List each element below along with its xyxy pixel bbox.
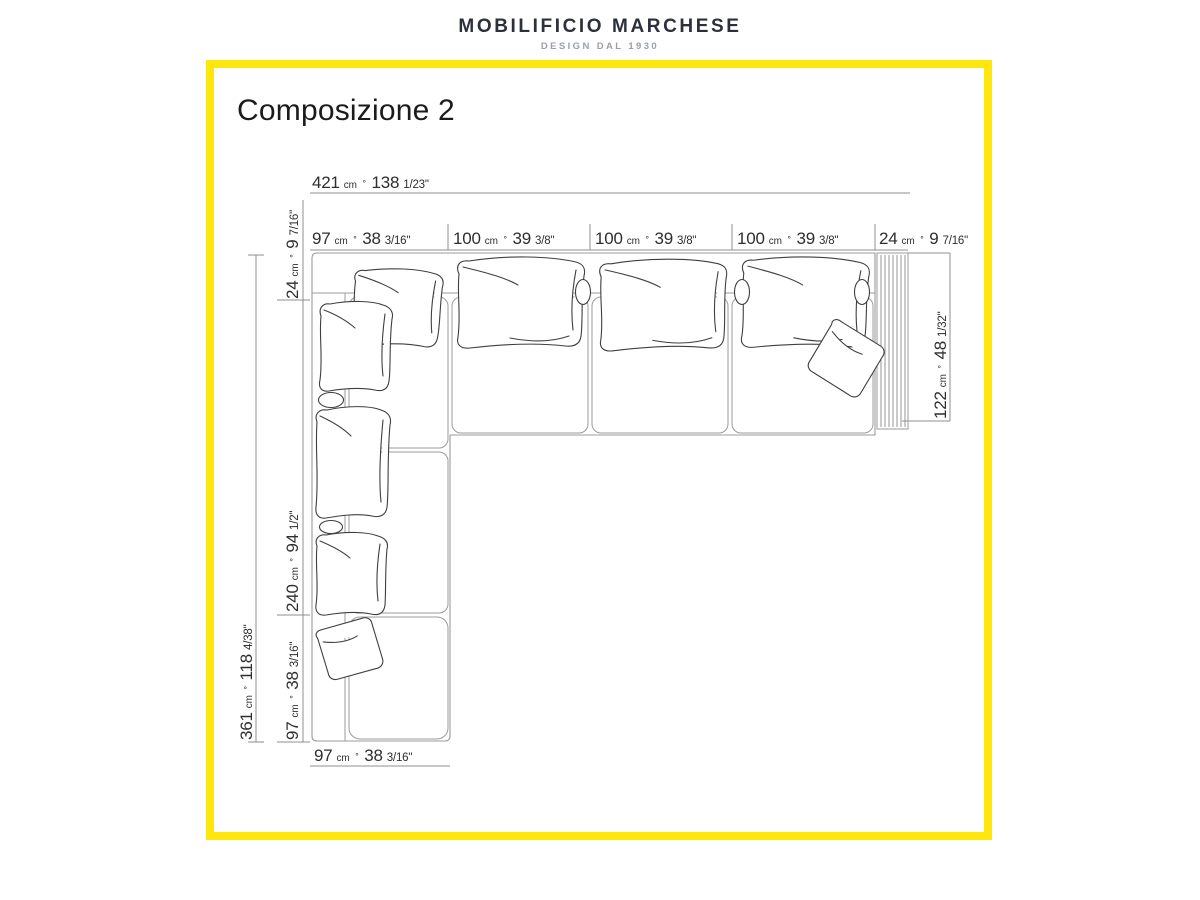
dim-total-width: 421cm∘1381/23"	[312, 173, 429, 192]
dim-right-depth: 122cm∘481/32"	[931, 311, 950, 419]
arm-cushion-2	[316, 532, 388, 615]
dim-left-seg-3: 97cm∘383/16"	[283, 642, 302, 740]
sofa-technical-drawing: 421cm∘1381/23" 97cm∘383/16" 100cm∘393/8"…	[0, 0, 1200, 900]
bolster-4	[319, 393, 344, 408]
bolster-3	[855, 280, 870, 305]
bolster-2	[735, 280, 750, 305]
back-cushion-2	[600, 259, 728, 352]
dim-seg-3: 100cm∘393/8"	[595, 229, 696, 248]
bolster-1	[576, 280, 591, 305]
dim-seg-1: 97cm∘383/16"	[312, 229, 410, 248]
dim-left-seg-1: 24cm∘97/16"	[283, 210, 302, 299]
dim-seg-4: 100cm∘393/8"	[737, 229, 838, 248]
dim-seg-5: 24cm∘97/16"	[879, 229, 968, 248]
back-cushion-1	[458, 257, 585, 348]
dim-bottom-width: 97cm∘383/16"	[314, 746, 412, 765]
arm-cushion-1	[316, 407, 391, 519]
dim-total-height: 361cm∘1184/38"	[237, 624, 256, 740]
dim-seg-2: 100cm∘393/8"	[453, 229, 554, 248]
corner-cushion-2	[319, 301, 392, 391]
bolster-5	[320, 521, 343, 534]
dim-left-seg-2: 240cm∘941/2"	[283, 511, 302, 612]
armrest-hatch	[881, 255, 905, 427]
armrest	[877, 253, 908, 429]
